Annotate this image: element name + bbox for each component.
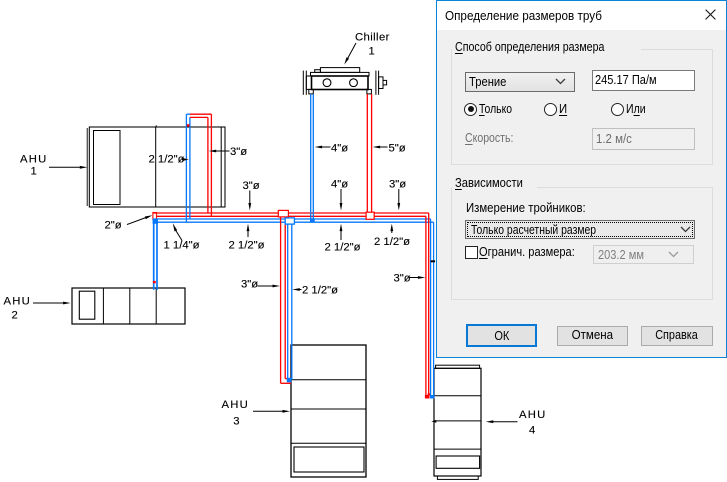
svg-text:4: 4 bbox=[529, 425, 535, 437]
svg-text:3"ø: 3"ø bbox=[394, 272, 411, 284]
svg-text:AHU: AHU bbox=[20, 154, 47, 166]
svg-text:AHU: AHU bbox=[519, 409, 546, 421]
svg-text:3"ø: 3"ø bbox=[241, 278, 258, 290]
svg-text:2 1/2"ø: 2 1/2"ø bbox=[302, 285, 338, 297]
svg-text:1: 1 bbox=[369, 46, 375, 58]
svg-text:3"ø: 3"ø bbox=[243, 180, 260, 192]
svg-text:3"ø: 3"ø bbox=[230, 146, 247, 158]
svg-text:1: 1 bbox=[31, 166, 37, 178]
svg-text:2 1/2"ø: 2 1/2"ø bbox=[149, 153, 185, 165]
svg-text:Chiller: Chiller bbox=[355, 32, 390, 44]
svg-text:4"ø: 4"ø bbox=[331, 178, 348, 190]
svg-text:2: 2 bbox=[12, 310, 18, 322]
svg-text:5"ø: 5"ø bbox=[389, 142, 406, 154]
svg-text:4"ø: 4"ø bbox=[331, 142, 348, 154]
svg-text:AHU: AHU bbox=[4, 296, 31, 308]
svg-text:3"ø: 3"ø bbox=[389, 178, 406, 190]
svg-text:1 1/4"ø: 1 1/4"ø bbox=[164, 239, 200, 251]
svg-text:2 1/2"ø: 2 1/2"ø bbox=[325, 242, 361, 254]
svg-text:AHU: AHU bbox=[222, 399, 249, 411]
svg-text:2 1/2"ø: 2 1/2"ø bbox=[229, 239, 265, 251]
svg-text:2"ø: 2"ø bbox=[105, 220, 122, 232]
svg-text:2 1/2"ø: 2 1/2"ø bbox=[374, 236, 410, 248]
svg-text:3: 3 bbox=[233, 416, 239, 428]
